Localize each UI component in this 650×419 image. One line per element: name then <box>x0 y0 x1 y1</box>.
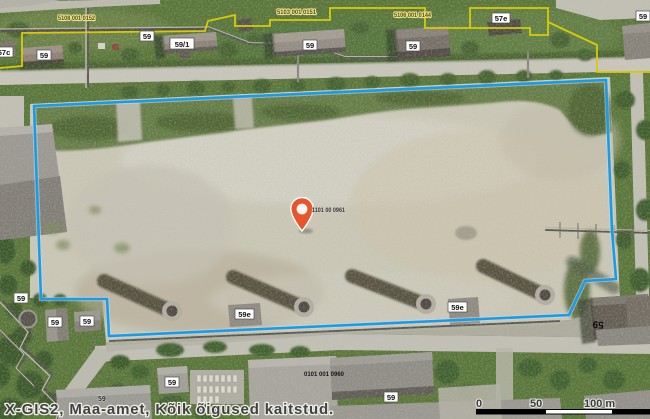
svg-text:0101 001 0960: 0101 001 0960 <box>304 372 345 378</box>
svg-text:59: 59 <box>143 32 151 41</box>
svg-text:1101 00 0961: 1101 00 0961 <box>312 208 346 214</box>
svg-text:59: 59 <box>40 51 48 60</box>
svg-text:5106 001 0144: 5106 001 0144 <box>394 13 432 19</box>
svg-text:57c: 57c <box>0 48 10 57</box>
svg-text:5108 001 0152: 5108 001 0152 <box>58 16 96 22</box>
svg-text:59/1: 59/1 <box>175 40 190 49</box>
svg-text:59: 59 <box>51 318 59 327</box>
svg-text:59: 59 <box>83 317 91 326</box>
svg-text:59: 59 <box>387 393 395 402</box>
svg-text:59e: 59e <box>451 303 464 312</box>
svg-text:59: 59 <box>409 42 417 51</box>
svg-text:59: 59 <box>306 41 314 50</box>
svg-text:0: 0 <box>476 398 482 410</box>
svg-text:50: 50 <box>530 398 542 410</box>
svg-text:59e: 59e <box>238 310 251 319</box>
svg-text:59: 59 <box>17 294 25 303</box>
svg-text:59: 59 <box>168 378 176 387</box>
svg-text:5103 001 0151: 5103 001 0151 <box>277 10 317 16</box>
svg-text:X-GIS2, Maa-amet, Kõik õigused: X-GIS2, Maa-amet, Kõik õigused kaitstud. <box>5 401 334 418</box>
svg-text:59: 59 <box>639 12 647 21</box>
svg-text:57e: 57e <box>495 14 508 23</box>
svg-text:100 m: 100 m <box>584 398 615 410</box>
svg-text:59: 59 <box>592 318 604 330</box>
